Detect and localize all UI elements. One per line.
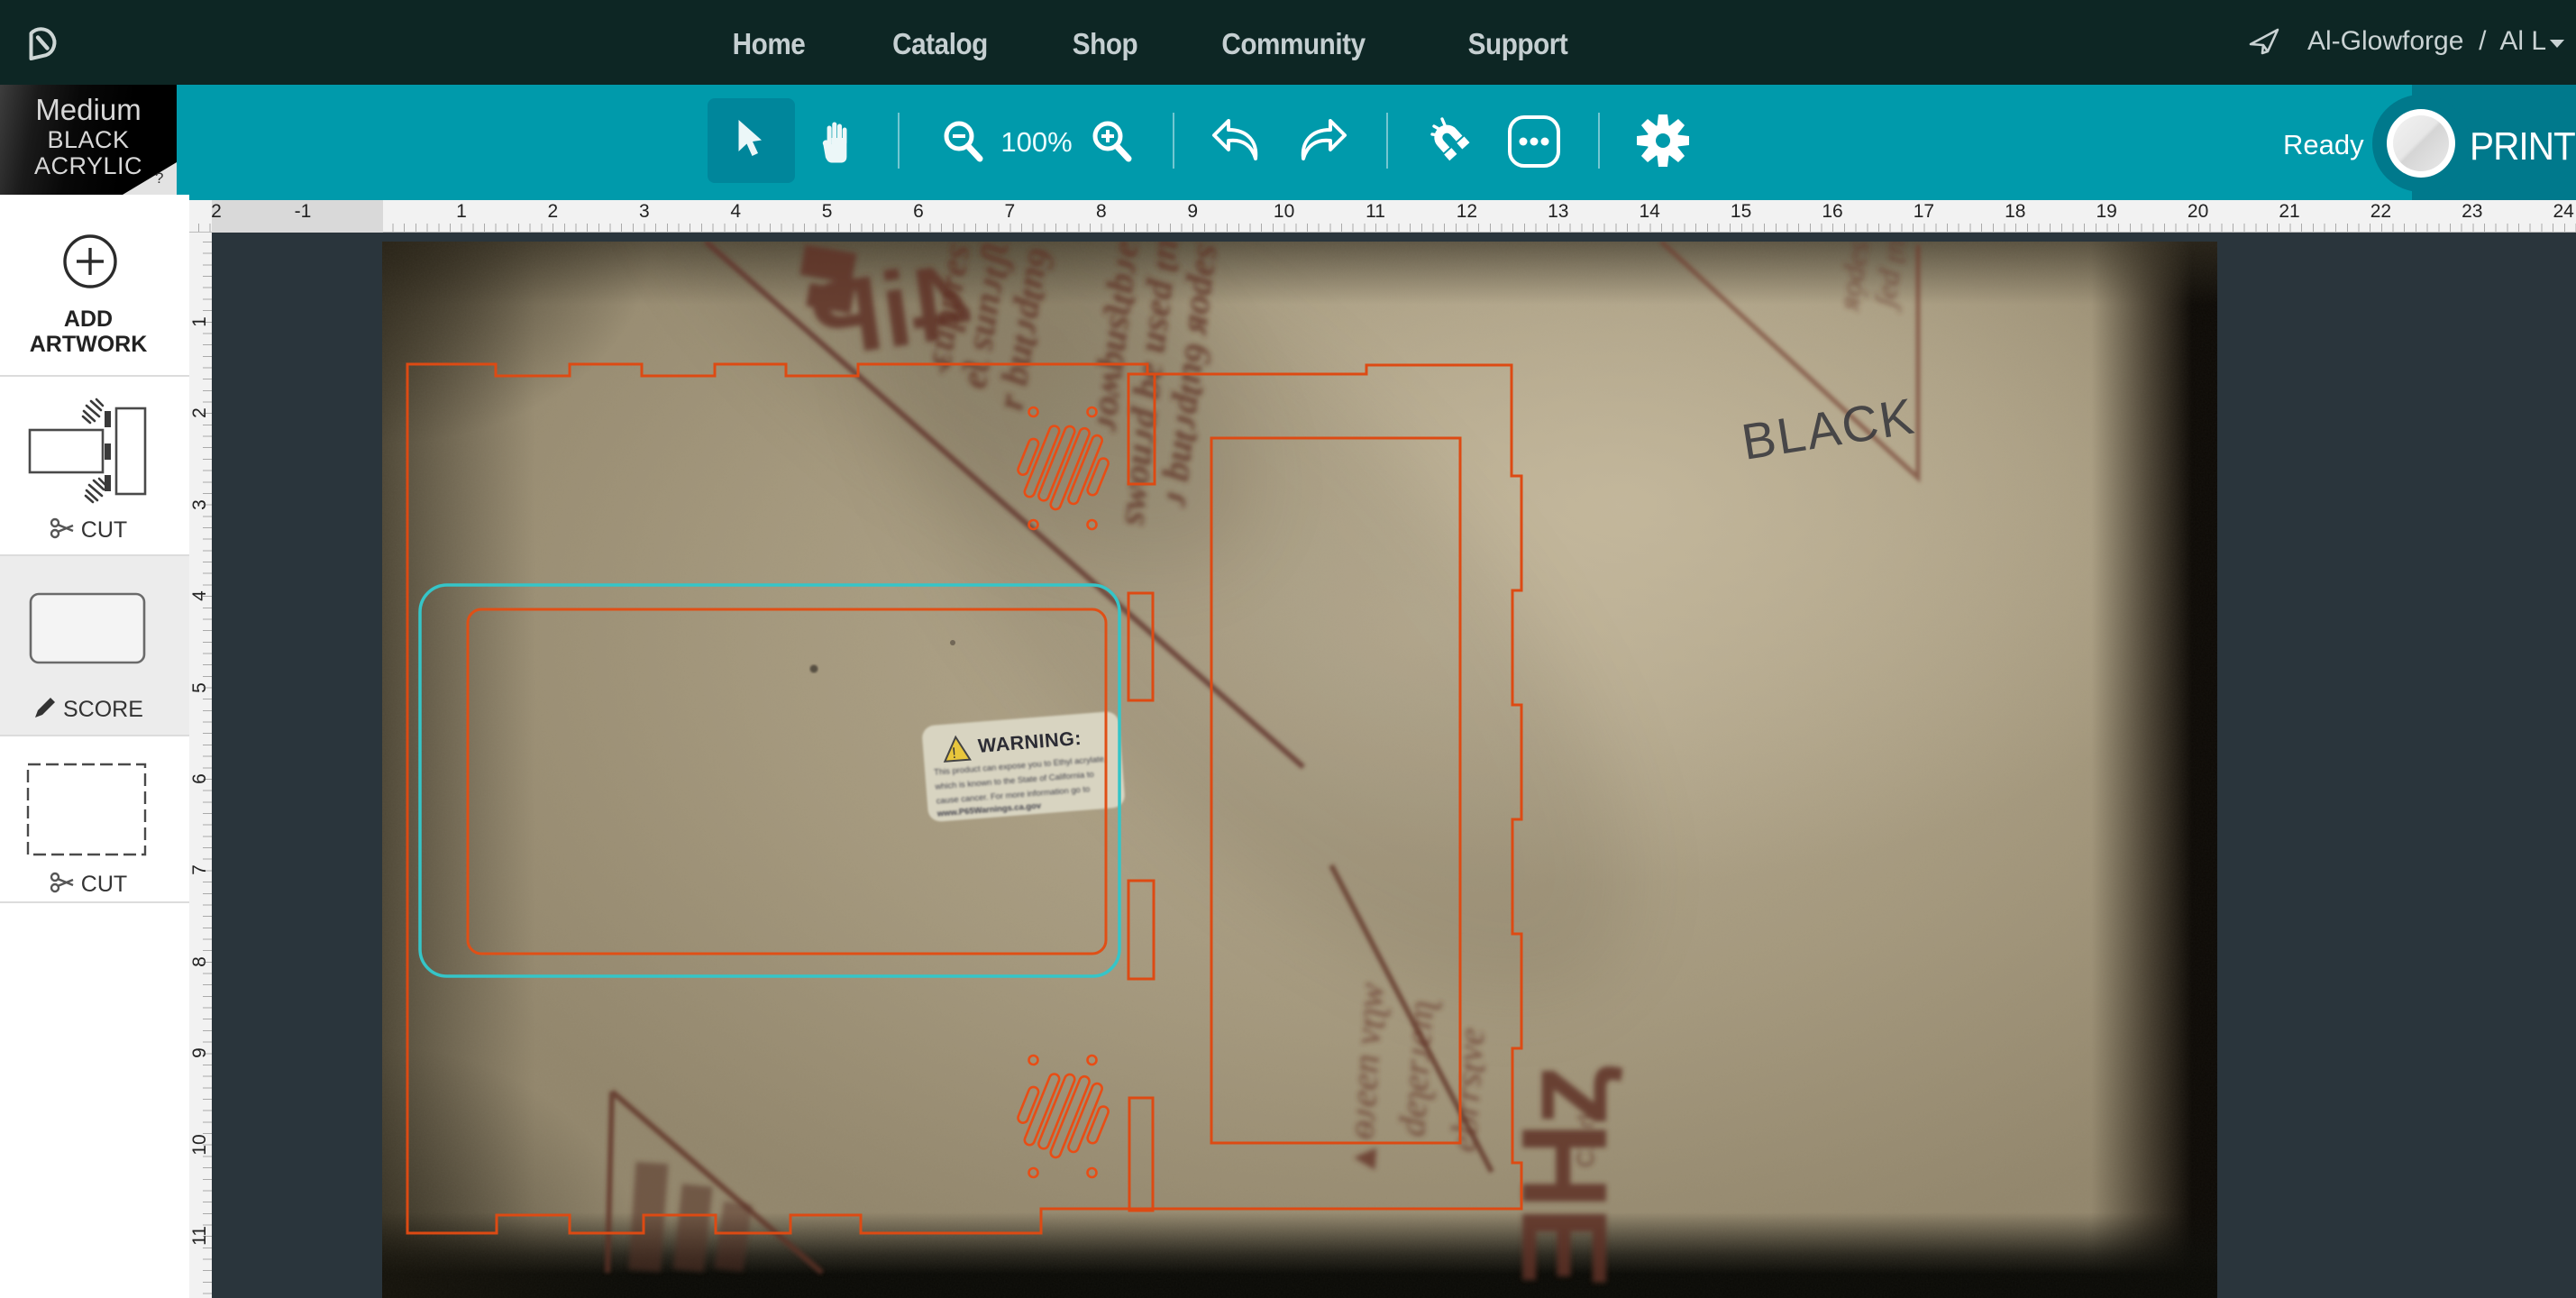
svg-text:ƎHȥ: ƎHȥ (1496, 1065, 1632, 1287)
svg-text:əʌʇsɹɹqə: əʌʇsɹɹqə (1448, 1027, 1498, 1154)
svg-text:CƎIɾI: CƎIɾI (1572, 1114, 1599, 1167)
